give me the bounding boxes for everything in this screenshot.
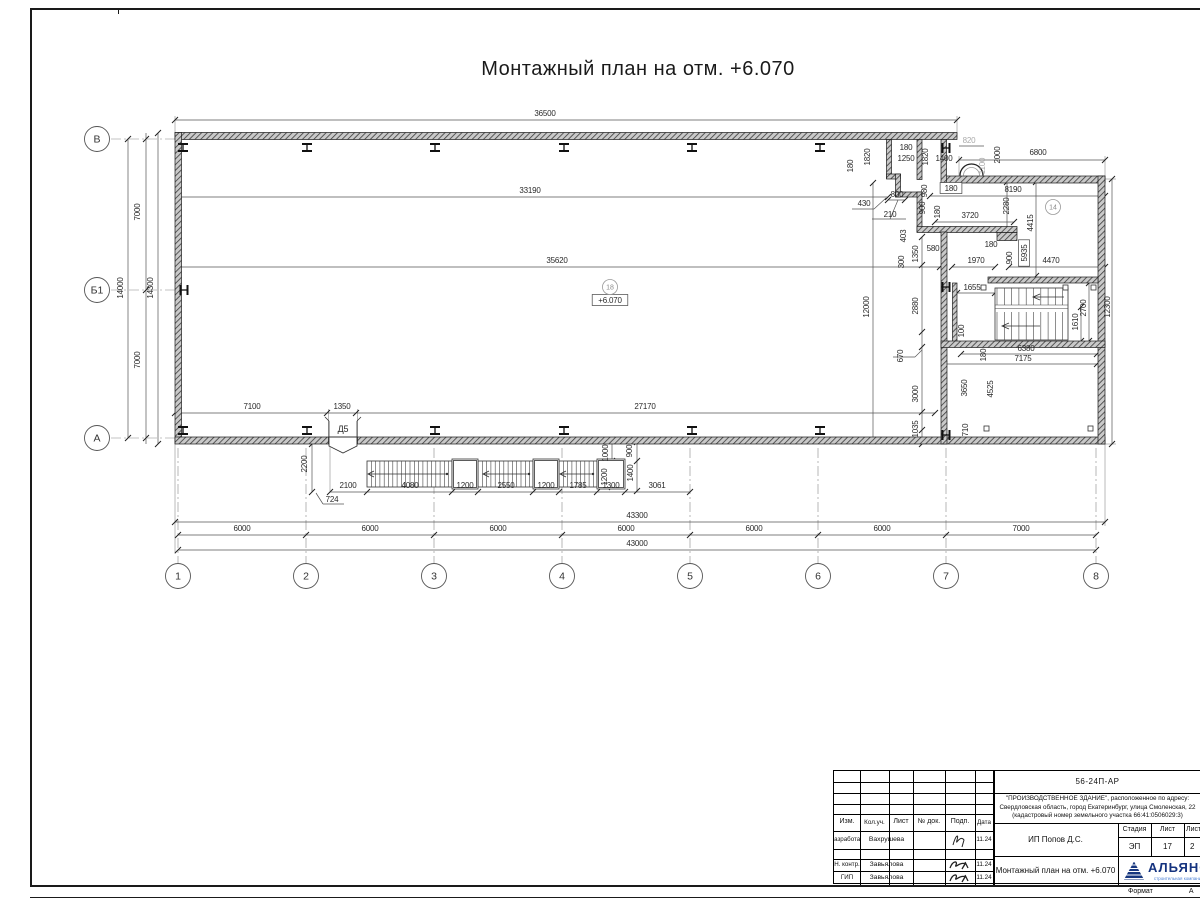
plan-annotations: 3650068003319035620819037202280441559359… [116, 109, 1112, 548]
axis-bubble-label: 8 [1093, 571, 1099, 583]
dimension-text: 3650 [960, 379, 969, 397]
dimension-text: 14300 [146, 277, 155, 299]
title-block: Изм. Кол.уч. Лист № док. Подп. Дата Разр… [833, 770, 1200, 884]
dimension-text: 4080 [402, 481, 420, 490]
dimension-text: 180 [933, 205, 942, 218]
dimension-text: 27170 [634, 402, 656, 411]
dimension-text: 180 [900, 143, 913, 152]
dimension-text: 1970 [968, 256, 986, 265]
tb-drawing-name: Монтажный план на отм. +6.070 [993, 856, 1118, 885]
frame-bottom [30, 885, 1200, 887]
dimension-text: 2100 [340, 481, 358, 490]
dimension-text: 35620 [546, 256, 568, 265]
dimension-text: 1350 [334, 402, 352, 411]
dimension-text: 1200 [600, 468, 609, 486]
dimension-text: 180 [945, 184, 958, 193]
dimension-text: 900 [1005, 251, 1014, 264]
dimension-text: 6000 [746, 524, 764, 533]
steel-columns [178, 143, 950, 440]
tb-role-2: Н. контр. [834, 859, 860, 871]
dimension-text: 1655 [964, 283, 982, 292]
axis-bubble-label: В [93, 134, 100, 146]
axis-bubble-label: 2 [303, 571, 309, 583]
dimension-text: 6800 [1030, 148, 1048, 157]
dimension-text: 7175 [1015, 354, 1033, 363]
axis-bubble-label: 7 [943, 571, 949, 583]
dimension-text: 7000 [133, 351, 142, 369]
tb-address-line3: (кадастровый номер земельного участка 66… [1012, 812, 1183, 821]
dimension-text: 6380 [1018, 344, 1036, 353]
dimension-text: 3061 [649, 481, 667, 490]
dimension-text: 1250 [898, 154, 916, 163]
tb-stage-value: ЭП [1118, 837, 1151, 856]
company-logo: АЛЬЯНС строительная компания [1118, 856, 1200, 885]
dimension-text: 12300 [1103, 296, 1112, 318]
room-bubble-label: 18 [606, 285, 614, 292]
dimension-text: Д5 [338, 424, 349, 434]
tb-date-1: 11.24 [975, 831, 993, 849]
dimension-text: 580 [927, 244, 940, 253]
dimension-text: 14000 [116, 277, 125, 299]
dimension-text: 180 [846, 159, 855, 172]
logo-company-name: АЛЬЯНС [1148, 860, 1200, 876]
format-value: А [1189, 888, 1194, 895]
tb-name-3: Завьялова [860, 871, 913, 885]
dimension-text: 1350 [911, 245, 920, 263]
signature-1 [945, 831, 975, 849]
dimension-text: 403 [899, 229, 908, 242]
dimension-text: 36500 [534, 109, 556, 118]
tb-sheet-value: 17 [1151, 837, 1184, 856]
dimension-text: 100 [957, 324, 966, 337]
dimension-text: 1610 [1071, 313, 1080, 331]
dimension-text: 2550 [498, 481, 516, 490]
logo-company-subtitle: строительная компания [1148, 876, 1200, 881]
dimension-text: 1100 [978, 157, 987, 174]
dimension-text: 1000 [601, 444, 610, 462]
dimension-text: 724 [326, 495, 339, 504]
dimension-text: 2200 [300, 455, 309, 473]
dimension-text: 980 [920, 184, 929, 197]
tb-doc-code: 56-24П-АР [993, 771, 1200, 793]
dimension-text: 7000 [133, 203, 142, 221]
tb-address-line2: Свердловская область, город Екатеринбург… [999, 804, 1195, 813]
dimension-text: 6000 [234, 524, 252, 533]
tb-address-line1: "ПРОИЗВОДСТВЕННОЕ ЗДАНИЕ", расположенное… [1006, 795, 1189, 804]
dimension-text: 43300 [626, 511, 648, 520]
dimension-text: 3720 [962, 211, 980, 220]
dimension-text: 1785 [570, 481, 588, 490]
axis-bubble-label: 4 [559, 571, 565, 583]
frame-outer-bottom [30, 897, 1200, 898]
tb-name-1: Вахрушева [860, 831, 913, 849]
tb-sheet-label: Лист [1151, 823, 1184, 837]
dimension-text: 210 [884, 210, 897, 219]
dimension-text: 2700 [1079, 299, 1088, 317]
tb-col-list: Лист [889, 814, 913, 831]
grid-axes [111, 139, 1096, 563]
logo-triangle-icon [1124, 862, 1144, 880]
tb-sheets-label: Листов [1184, 823, 1200, 837]
dimension-text: 2280 [1002, 197, 1011, 215]
tb-date-2: 11.24 [975, 859, 993, 871]
dimension-text: 3000 [911, 385, 920, 403]
door-symbol [325, 417, 361, 453]
tb-project-address: "ПРОИЗВОДСТВЕННОЕ ЗДАНИЕ", расположенное… [997, 793, 1198, 823]
dimension-text: 7000 [1013, 524, 1031, 533]
dimension-text: 180 [985, 240, 998, 249]
dimension-text: 1820 [863, 148, 872, 166]
tb-col-izm: Изм. [834, 814, 860, 831]
dimension-text: 2000 [993, 146, 1002, 164]
tb-col-podp: Подп. [945, 814, 975, 831]
dimension-text: 6000 [618, 524, 636, 533]
tb-stage-label: Стадия [1118, 823, 1151, 837]
format-label: Формат [1128, 888, 1153, 895]
format-strip: Формат А [1100, 886, 1200, 897]
tb-col-koluch: Кол.уч. [860, 814, 889, 831]
dimension-text: 2880 [911, 297, 920, 315]
dimension-text: 1200 [457, 481, 475, 490]
axis-bubble-label: Б1 [91, 285, 104, 297]
room-bubble-label: 14 [1049, 205, 1057, 212]
dimension-text: 33190 [519, 186, 541, 195]
dimension-text: 8190 [1005, 185, 1023, 194]
tb-name-2: Завьялова [860, 859, 913, 871]
floor-plan: 3650068003319035620819037202280441559359… [0, 0, 1200, 760]
dimension-text: 900 [918, 201, 927, 214]
dimension-text: 800 [891, 190, 904, 199]
axis-bubble-label: 5 [687, 571, 693, 583]
dimension-text: 180 [979, 348, 988, 361]
dimension-text: 1400 [936, 154, 954, 163]
dimension-text: 6000 [362, 524, 380, 533]
dimension-text: 710 [961, 423, 970, 436]
dimension-text: 1035 [911, 420, 920, 438]
dimension-text: 43000 [626, 539, 648, 548]
tb-sheets-value: 2 [1184, 837, 1200, 856]
signature-2 [945, 859, 975, 871]
tb-col-data: Дата [975, 814, 993, 831]
dimension-text: 430 [858, 199, 871, 208]
dimension-text: 4470 [1043, 256, 1061, 265]
axis-bubble-label: 1 [175, 571, 181, 583]
dimension-text: 820 [963, 136, 976, 145]
dimension-text: 12000 [862, 296, 871, 318]
dimension-text: 4525 [986, 380, 995, 398]
tb-role-3: ГИП [834, 871, 860, 885]
dimension-text: +6.070 [598, 296, 622, 305]
axis-bubble-label: 3 [431, 571, 437, 583]
tb-role-1: Разработал [834, 831, 860, 849]
dimension-text: 6000 [874, 524, 892, 533]
signature-3 [945, 871, 975, 885]
axis-bubble-label: А [93, 433, 100, 445]
axis-bubble-label: 6 [815, 571, 821, 583]
drawing-sheet: { "sheet": { "title": "Монтажный план на… [0, 0, 1200, 900]
dimension-text: 900 [625, 444, 634, 457]
dimension-text: 6000 [490, 524, 508, 533]
dimension-text: 4415 [1026, 214, 1035, 232]
tb-col-ndok: № док. [913, 814, 945, 831]
dimension-text: 1400 [626, 464, 635, 482]
dimension-text: 1820 [921, 148, 930, 166]
tb-date-3: 11.24 [975, 871, 993, 885]
dimension-text: 7100 [244, 402, 262, 411]
dimension-text: 670 [896, 349, 905, 362]
dimension-text: 300 [897, 255, 906, 268]
tb-client: ИП Попов Д.С. [993, 823, 1118, 856]
dimension-text: 1200 [538, 481, 556, 490]
dimension-text: 5935 [1020, 244, 1029, 262]
